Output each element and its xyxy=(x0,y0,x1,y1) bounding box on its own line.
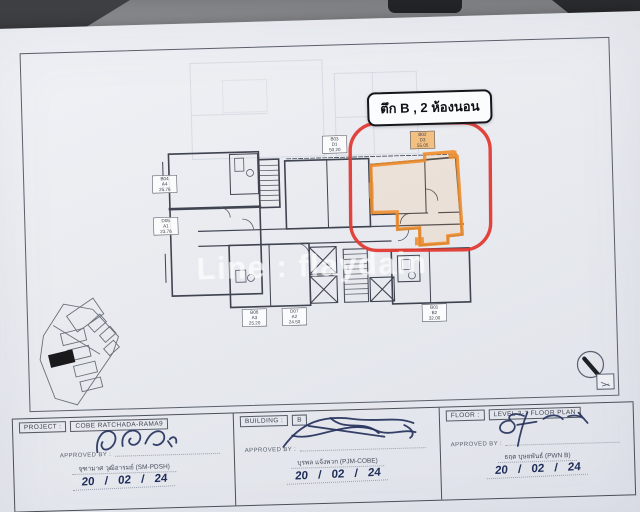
unit-label-b06: B06 A3 25.20 xyxy=(242,309,267,328)
approval-date: 20 / 02 / 24 xyxy=(73,472,175,491)
watermark-text: Line : flaydain xyxy=(196,245,428,287)
unit-area: 55.05 xyxy=(411,142,435,148)
unit-label-b02-highlighted: B02 D3 55.05 xyxy=(410,131,435,150)
floor-label: FLOOR : xyxy=(446,409,485,421)
unit-label-b03: B03 D1 50.20 xyxy=(322,135,347,154)
title-block-floor-column: FLOOR : LEVEL 3-7 FLOOR PLAN APPROVED BY… xyxy=(440,402,636,499)
signature-floor xyxy=(492,403,603,450)
unit-area: 25.20 xyxy=(243,320,267,326)
unit-label-b04: B04 A4 25.76 xyxy=(152,175,177,194)
site-current-building-marker xyxy=(48,349,75,368)
north-arrow-compass xyxy=(577,351,614,390)
drawing-sheet: ตึก B , 2 ห้องนอน Line : flaydain B04 A4… xyxy=(0,11,640,512)
project-label: PROJECT : xyxy=(19,421,67,433)
photo-of-floorplan-sheet: { "callout": { "label": "ตึก B , 2 ห้องน… xyxy=(0,0,640,512)
title-block-project-column: PROJECT : COBE RATCHADA-RAMA9 APPROVED B… xyxy=(12,413,236,511)
unit-area: 50.20 xyxy=(323,147,347,153)
signature-project xyxy=(83,419,184,462)
callout-label: ตึก B , 2 ห้องนอน xyxy=(367,89,493,126)
unit-highlight-orange xyxy=(368,151,463,247)
unit-area: 25.76 xyxy=(153,187,177,193)
unit-label-b01: B01 B2 32.00 xyxy=(422,303,447,322)
approval-date: 20 / 02 / 24 xyxy=(487,461,589,480)
unit-area: 24.50 xyxy=(283,319,307,325)
unit-area: 32.00 xyxy=(423,315,447,321)
signature-building xyxy=(274,406,425,456)
unit-label-d05: D05 A1 23.76 xyxy=(153,217,178,236)
title-block-building-column: BUILDING : B APPROVED BY : บุรพล แจ้งพวก… xyxy=(234,408,442,506)
approval-date: 20 / 02 / 24 xyxy=(287,466,389,485)
unit-label-d07: D07 A2 24.50 xyxy=(282,307,307,326)
title-block: PROJECT : COBE RATCHADA-RAMA9 APPROVED B… xyxy=(12,401,636,512)
photo-background-notch xyxy=(388,0,462,13)
site-key-plan xyxy=(38,297,121,405)
unit-area: 23.76 xyxy=(154,229,178,235)
